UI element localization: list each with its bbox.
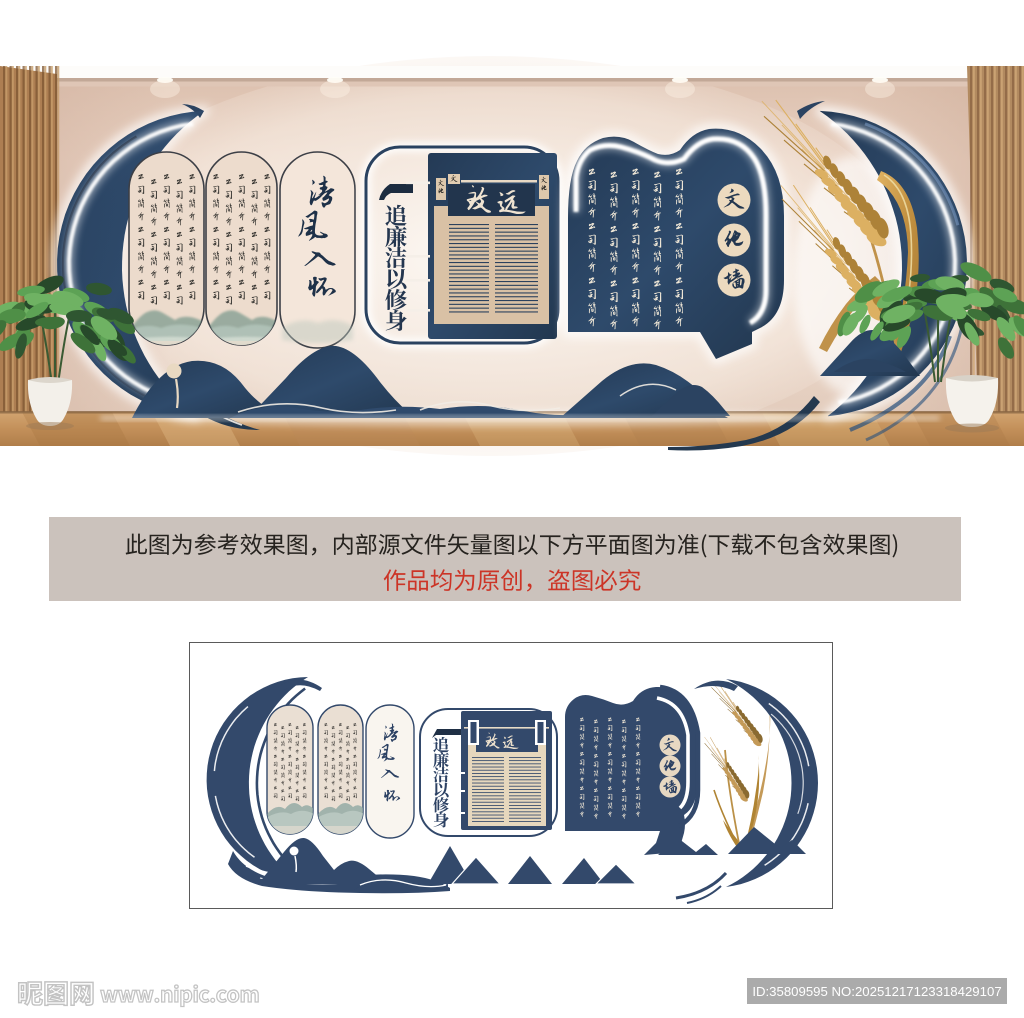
svg-text:ID:35809595 NO:202512171233184: ID:35809595 NO:20251217123318429107: [752, 984, 1001, 999]
